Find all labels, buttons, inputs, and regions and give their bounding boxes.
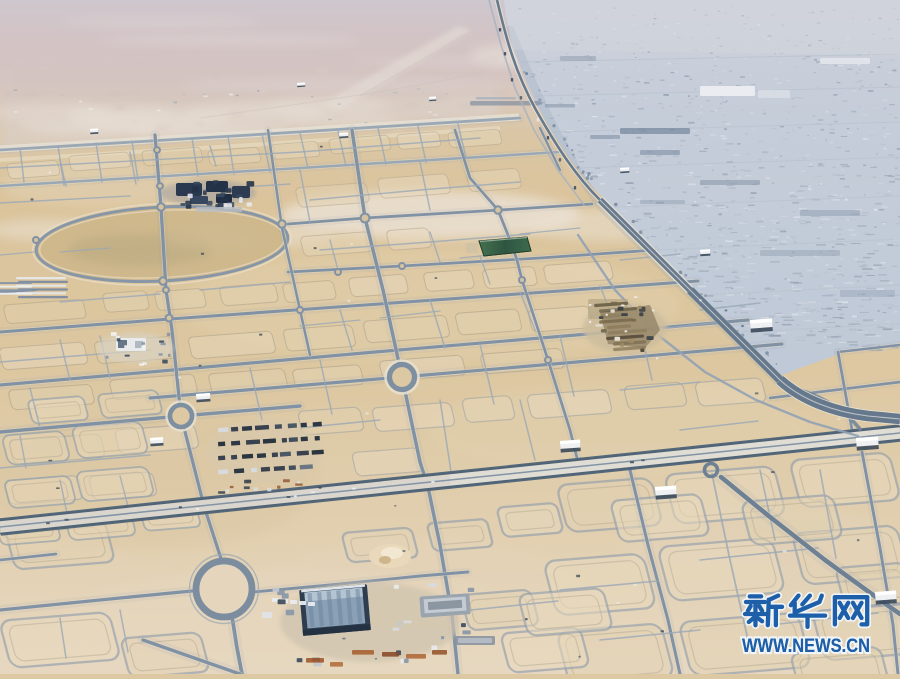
svg-text:WWW.NEWS.CN: WWW.NEWS.CN bbox=[742, 635, 870, 657]
